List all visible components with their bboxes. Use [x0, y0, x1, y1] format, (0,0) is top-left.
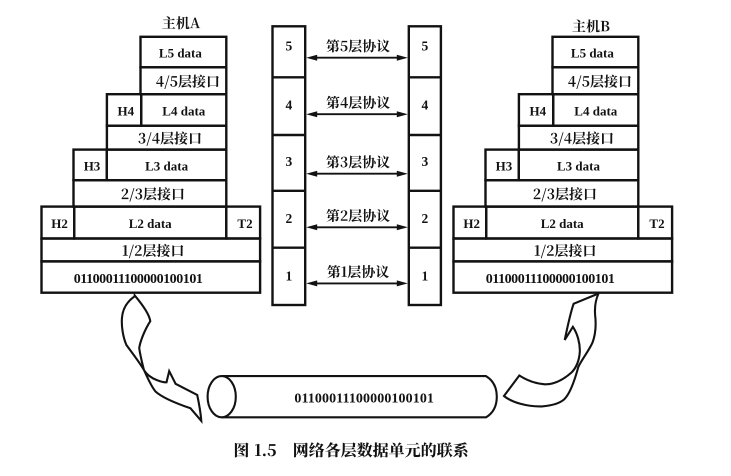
svg-text:3: 3	[286, 154, 293, 169]
svg-text:L4 data: L4 data	[574, 104, 617, 119]
svg-text:2: 2	[286, 211, 293, 226]
svg-text:H3: H3	[496, 158, 513, 173]
svg-text:4: 4	[286, 97, 293, 112]
svg-text:5: 5	[286, 39, 293, 54]
svg-text:3: 3	[422, 154, 429, 169]
svg-text:T2: T2	[237, 216, 252, 231]
svg-text:1: 1	[422, 269, 429, 284]
svg-text:L2 data: L2 data	[129, 216, 172, 231]
svg-text:01100011100000100101: 01100011100000100101	[294, 391, 434, 406]
svg-text:L3 data: L3 data	[557, 158, 600, 173]
svg-text:L5 data: L5 data	[159, 46, 202, 61]
svg-text:H2: H2	[463, 216, 480, 231]
svg-text:2: 2	[422, 211, 429, 226]
svg-text:5: 5	[422, 39, 429, 54]
svg-text:H4: H4	[529, 104, 546, 119]
svg-text:1: 1	[286, 269, 293, 284]
svg-text:L3 data: L3 data	[145, 158, 188, 173]
svg-text:L5 data: L5 data	[571, 46, 614, 61]
svg-text:H2: H2	[51, 216, 68, 231]
svg-text:4: 4	[422, 97, 429, 112]
svg-text:L4 data: L4 data	[162, 104, 205, 119]
svg-text:01100011100000100101: 01100011100000100101	[486, 272, 615, 287]
svg-text:T2: T2	[649, 216, 664, 231]
svg-text:H4: H4	[117, 104, 134, 119]
svg-text:L2 data: L2 data	[541, 216, 584, 231]
svg-text:H3: H3	[84, 158, 101, 173]
svg-text:01100011100000100101: 01100011100000100101	[74, 272, 203, 287]
